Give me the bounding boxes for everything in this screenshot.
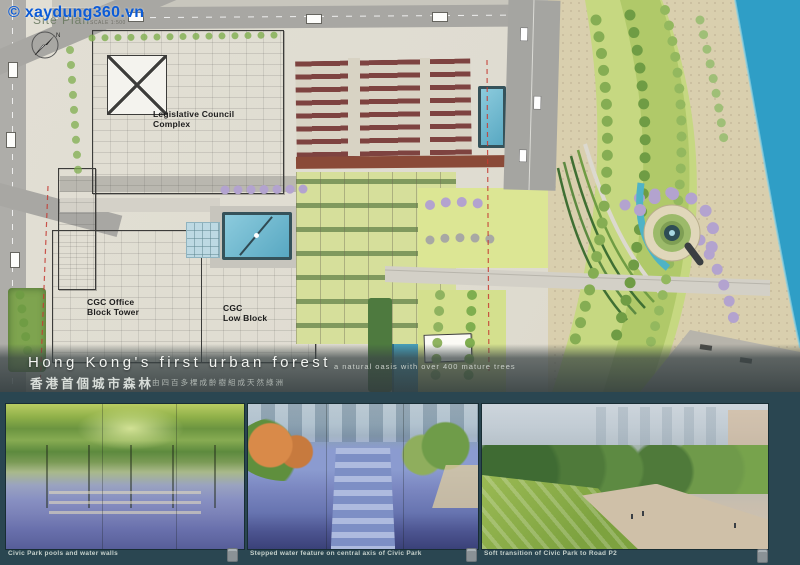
subtitle-zh: 由四百多棵成齡樹組成天然綠洲	[152, 377, 285, 388]
logo-stamp-icon	[757, 549, 768, 563]
fold-line	[403, 404, 404, 549]
rendering-panel-pools	[6, 404, 244, 549]
north-arrow-icon: N	[30, 29, 64, 61]
logo-stamp-icon	[466, 548, 477, 562]
rendering-panel-stepped-water	[248, 404, 478, 549]
right-road	[504, 0, 561, 191]
title-zh: 香港首個城市森林	[30, 373, 154, 392]
figure	[631, 514, 633, 519]
title-band: Hong Kong's first urban forest a natural…	[0, 344, 800, 392]
title-en: Hong Kong's first urban forest	[28, 354, 331, 371]
subtitle-en: a natural oasis with over 400 mature tre…	[334, 362, 516, 371]
svg-text:N: N	[56, 33, 60, 39]
site-boundary	[40, 60, 489, 390]
waterfront-park-graphic	[0, 0, 800, 392]
figure	[734, 523, 736, 528]
fold-line	[326, 404, 327, 549]
watermark: © xaydung360.vn	[8, 4, 144, 22]
fold-line	[176, 404, 177, 549]
rendering-panel-road-transition	[482, 404, 768, 549]
fold-line	[102, 404, 103, 549]
stepped-water	[331, 448, 395, 550]
caption-pools: Civic Park pools and water walls	[8, 550, 118, 557]
water-steps	[49, 491, 201, 520]
caption-road-transition: Soft transition of Civic Park to Road P2	[484, 550, 617, 557]
logo-stamp-icon	[227, 548, 238, 562]
presentation-board: Legislative Council Complex CGC Office B…	[0, 0, 800, 565]
site-plan: Legislative Council Complex CGC Office B…	[0, 0, 800, 392]
caption-stepped-water: Stepped water feature on central axis of…	[250, 550, 422, 557]
figure	[642, 511, 644, 516]
